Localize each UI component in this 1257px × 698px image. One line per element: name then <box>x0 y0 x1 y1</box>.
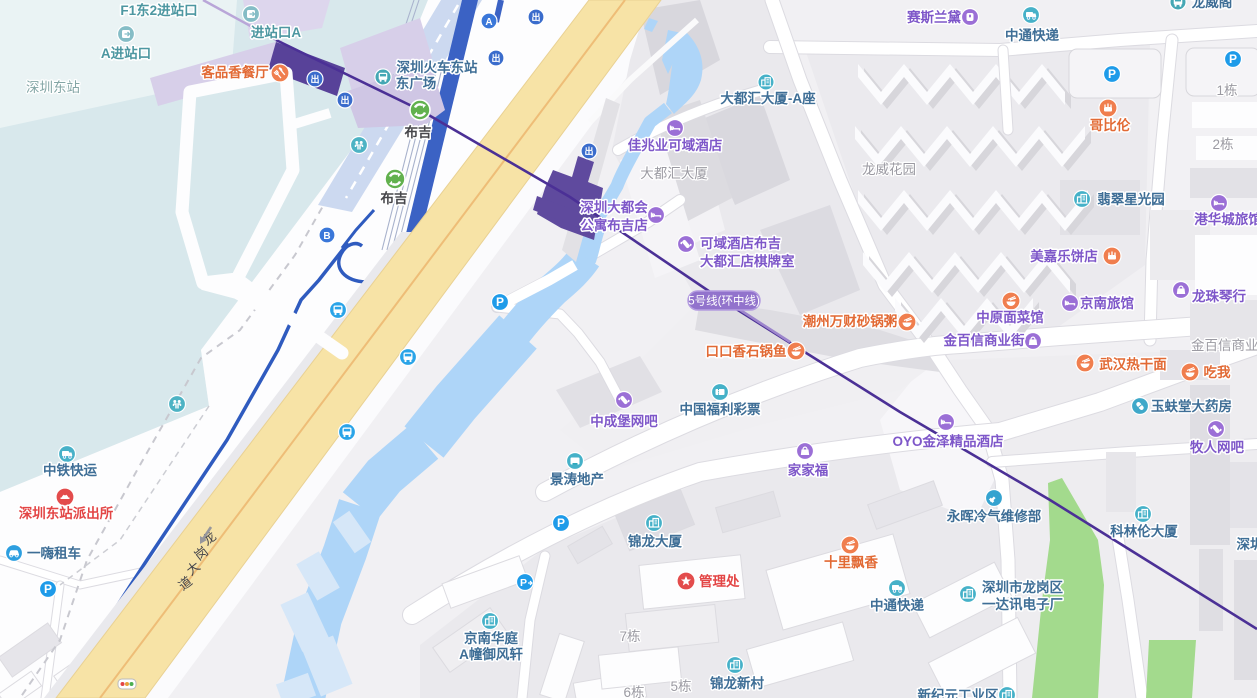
svg-text:锦龙新村: 锦龙新村 <box>710 675 764 691</box>
svg-text:深圳市龙岗区: 深圳市龙岗区 <box>982 579 1063 595</box>
svg-text:OYO金泽精品酒店: OYO金泽精品酒店 <box>892 433 1004 449</box>
svg-text:美嘉乐饼店: 美嘉乐饼店 <box>1030 248 1098 264</box>
svg-text:一达讯电子厂: 一达讯电子厂 <box>982 596 1063 612</box>
svg-text:龙威阁: 龙威阁 <box>1191 0 1233 10</box>
svg-text:潮州万财砂锅粥: 潮州万财砂锅粥 <box>803 313 898 329</box>
svg-text:牧人网吧: 牧人网吧 <box>1190 439 1244 455</box>
svg-text:深圳东站: 深圳东站 <box>26 80 80 95</box>
svg-text:中通快递: 中通快递 <box>1005 27 1059 43</box>
svg-text:7栋: 7栋 <box>619 629 640 644</box>
svg-text:A进站口: A进站口 <box>101 45 151 61</box>
svg-text:中成堡网吧: 中成堡网吧 <box>590 413 658 429</box>
svg-text:5栋: 5栋 <box>670 679 691 694</box>
svg-text:深圳东站派出所: 深圳东站派出所 <box>19 505 114 521</box>
svg-text:深圳: 深圳 <box>1237 536 1257 552</box>
svg-text:中通快递: 中通快递 <box>870 597 924 613</box>
svg-text:十里飘香: 十里飘香 <box>824 554 878 570</box>
svg-text:进站口A: 进站口A <box>251 24 301 40</box>
svg-text:吃我: 吃我 <box>1204 364 1232 380</box>
svg-text:中国福利彩票: 中国福利彩票 <box>680 401 761 417</box>
svg-text:A幢御风轩: A幢御风轩 <box>459 646 523 662</box>
svg-text:武汉热干面: 武汉热干面 <box>1099 356 1167 372</box>
svg-text:京南华庭: 京南华庭 <box>464 630 518 646</box>
svg-text:港华城旅馆: 港华城旅馆 <box>1194 211 1257 227</box>
svg-text:龙威花园: 龙威花园 <box>862 162 916 177</box>
svg-text:家家福: 家家福 <box>788 462 829 478</box>
svg-text:口口香石锅鱼: 口口香石锅鱼 <box>706 343 787 359</box>
svg-text:中铁快运: 中铁快运 <box>43 462 97 478</box>
svg-text:东广场: 东广场 <box>396 75 437 91</box>
svg-text:布吉: 布吉 <box>381 190 408 206</box>
svg-text:金百信商业广场: 金百信商业广场 <box>1191 338 1257 353</box>
svg-text:玉蚨堂大药房: 玉蚨堂大药房 <box>1151 398 1232 414</box>
svg-text:管理处: 管理处 <box>699 573 740 589</box>
svg-text:金百信商业街: 金百信商业街 <box>943 332 1025 348</box>
svg-text:公寓布吉店: 公寓布吉店 <box>580 217 648 233</box>
svg-text:科林伦大厦: 科林伦大厦 <box>1110 523 1178 539</box>
svg-text:布吉: 布吉 <box>405 124 432 140</box>
svg-text:可域酒店布吉: 可域酒店布吉 <box>700 235 781 251</box>
svg-text:中原面菜馆: 中原面菜馆 <box>976 309 1044 325</box>
svg-text:大都汇大厦: 大都汇大厦 <box>640 166 708 181</box>
svg-text:永晖冷气维修部: 永晖冷气维修部 <box>947 508 1042 524</box>
svg-text:景涛地产: 景涛地产 <box>550 471 604 487</box>
svg-text:翡翠星光园: 翡翠星光园 <box>1097 191 1165 207</box>
svg-text:5号线(环中线): 5号线(环中线) <box>688 294 760 308</box>
svg-text:锦龙大厦: 锦龙大厦 <box>628 533 682 549</box>
svg-text:2栋: 2栋 <box>1212 137 1233 152</box>
svg-text:大都汇大厦-A座: 大都汇大厦-A座 <box>720 90 816 106</box>
svg-text:大都汇店棋牌室: 大都汇店棋牌室 <box>700 253 795 269</box>
svg-text:新纪元工业区: 新纪元工业区 <box>918 687 999 698</box>
svg-text:龙珠琴行: 龙珠琴行 <box>1191 288 1246 304</box>
svg-text:赛斯兰黛: 赛斯兰黛 <box>906 9 961 25</box>
svg-text:6栋: 6栋 <box>623 685 644 698</box>
svg-text:F1东2进站口: F1东2进站口 <box>120 2 197 18</box>
svg-text:一嗨租车: 一嗨租车 <box>27 545 81 561</box>
svg-text:佳兆业可域酒店: 佳兆业可域酒店 <box>628 137 723 153</box>
svg-text:哥比伦: 哥比伦 <box>1090 117 1131 133</box>
svg-text:深圳大都会: 深圳大都会 <box>580 199 648 215</box>
svg-text:京南旅馆: 京南旅馆 <box>1080 295 1134 311</box>
svg-text:客品香餐厅: 客品香餐厅 <box>200 64 269 80</box>
svg-text:1栋: 1栋 <box>1216 83 1237 98</box>
svg-text:深圳火车东站: 深圳火车东站 <box>397 59 478 75</box>
